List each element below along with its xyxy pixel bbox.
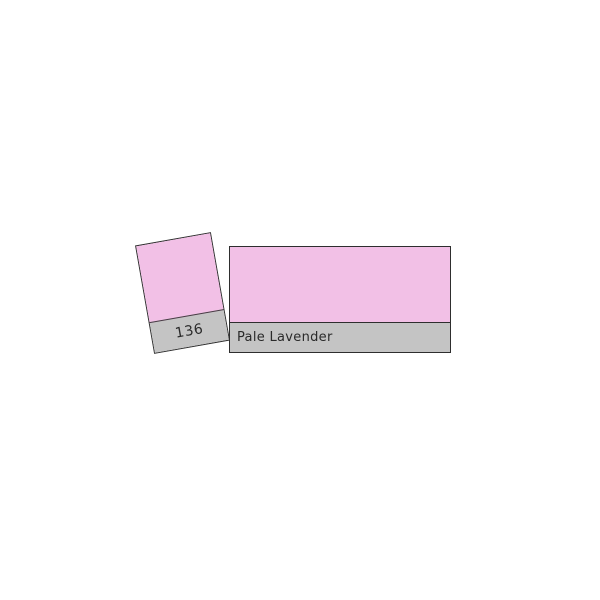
- color-preview-bar: Pale Lavender: [229, 246, 451, 353]
- filter-swatch-card: 136: [135, 232, 230, 354]
- swatch-card-color-area: [136, 233, 223, 322]
- filter-number-label: 136: [174, 321, 205, 342]
- filter-name-label: Pale Lavender: [237, 330, 333, 345]
- color-bar-color-area: [230, 247, 450, 323]
- color-bar-label-strip: Pale Lavender: [230, 323, 450, 352]
